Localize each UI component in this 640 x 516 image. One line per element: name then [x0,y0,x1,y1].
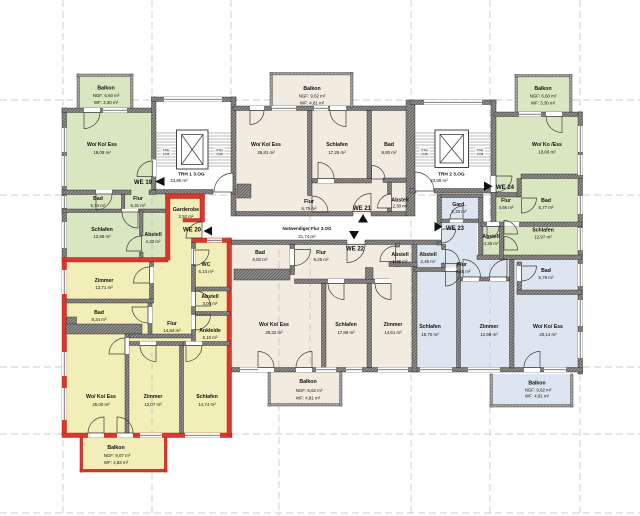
svg-text:14,74 m²: 14,74 m² [198,402,216,407]
svg-text:Bad: Bad [384,142,394,148]
svg-text:Schlafen: Schlafen [326,142,348,148]
svg-text:6,14 m²: 6,14 m² [199,269,214,274]
svg-text:Gard.: Gard. [452,202,466,208]
svg-text:Abstell: Abstell [482,234,500,240]
svg-text:WF: 3,30 m²: WF: 3,30 m² [94,100,119,105]
svg-text:Abstell: Abstell [201,294,219,300]
svg-text:19,05 m²: 19,05 m² [93,150,111,155]
svg-text:19,66 m²: 19,66 m² [538,150,556,155]
svg-text:WE 22: WE 22 [346,247,365,253]
svg-text:4,66 m²: 4,66 m² [499,205,514,210]
svg-text:9,45 m²: 9,45 m² [456,269,471,274]
svg-text:8,34 m²: 8,34 m² [92,317,107,322]
svg-text:17/28: 17/28 [216,152,223,156]
svg-text:Zimmer: Zimmer [384,322,403,328]
svg-text:8 Stg: 8 Stg [477,148,484,152]
svg-text:12,07 m²: 12,07 m² [144,402,162,407]
svg-text:Balkon: Balkon [299,379,316,385]
svg-text:2,52 m²: 2,52 m² [179,214,194,219]
svg-text:Zimmer: Zimmer [480,324,499,330]
svg-text:6,82 m²: 6,82 m² [253,257,268,262]
svg-text:20,14 m²: 20,14 m² [539,332,557,337]
svg-text:Wo/ Ko/ Ess: Wo/ Ko/ Ess [259,322,289,328]
svg-text:3,06 m²: 3,06 m² [203,301,218,306]
svg-text:2,33 m²: 2,33 m² [452,209,467,214]
svg-text:WE 21: WE 21 [353,206,372,212]
svg-text:17/28: 17/28 [163,152,170,156]
svg-text:25,00 m²: 25,00 m² [92,402,110,407]
svg-text:6,10 m²: 6,10 m² [203,335,218,340]
svg-text:WF: 4,81 m²: WF: 4,81 m² [300,101,325,106]
svg-text:8 Stg: 8 Stg [163,148,170,152]
svg-text:NGF: 9,62 m²: NGF: 9,62 m² [296,388,323,393]
svg-text:Zimmer: Zimmer [144,394,163,400]
svg-text:Balkon: Balkon [528,381,545,387]
svg-text:Balkon: Balkon [303,86,320,92]
svg-text:14,61 m²: 14,61 m² [384,330,402,335]
svg-text:Balkon: Balkon [534,86,551,92]
svg-text:Wo/ Ko/ Ess: Wo/ Ko/ Ess [533,324,563,330]
svg-text:29,32 m²: 29,32 m² [265,330,283,335]
svg-text:Wo/ Ko/ Ess: Wo/ Ko/ Ess [251,142,281,148]
svg-text:21,74 m²: 21,74 m² [298,234,316,239]
svg-text:6,75 m²: 6,75 m² [302,206,317,211]
svg-text:5,77 m²: 5,77 m² [539,205,554,210]
svg-text:TRH 1 3.OG: TRH 1 3.OG [178,172,205,178]
svg-text:Schlafen: Schlafen [91,227,113,233]
svg-text:Flur: Flur [133,196,143,202]
svg-text:Bad: Bad [94,310,104,316]
svg-text:Zimmer: Zimmer [95,278,114,284]
svg-text:Wo/ Ko/ Ess: Wo/ Ko/ Ess [87,142,117,148]
svg-text:WF: 4,83 m²: WF: 4,83 m² [104,460,129,465]
svg-text:Bad: Bad [255,250,265,256]
svg-text:Flur: Flur [457,262,467,268]
svg-text:4,33 m²: 4,33 m² [146,239,161,244]
svg-text:12,96 m²: 12,96 m² [93,234,111,239]
svg-text:Wo/ Ko /Ess: Wo/ Ko /Ess [532,142,562,148]
svg-text:NGF: 9,62 m²: NGF: 9,62 m² [299,94,326,99]
svg-text:9,25 m²: 9,25 m² [314,257,329,262]
svg-text:WF: 4,81 m²: WF: 4,81 m² [296,396,321,401]
svg-text:WE 20: WE 20 [183,228,202,234]
svg-text:5,31 m²: 5,31 m² [131,203,146,208]
svg-text:WF: 4,81 m²: WF: 4,81 m² [525,394,550,399]
svg-text:Schlafen: Schlafen [532,228,554,234]
svg-text:23,86 m²: 23,86 m² [170,178,188,183]
svg-text:Flur: Flur [167,321,177,327]
svg-text:4,33 m²: 4,33 m² [484,241,499,246]
svg-text:1,28 m²: 1,28 m² [393,259,408,264]
svg-text:17,26 m²: 17,26 m² [328,150,346,155]
svg-text:Flur: Flur [501,198,511,204]
svg-text:Bad: Bad [541,198,551,204]
svg-text:WC: WC [202,262,211,268]
svg-text:NGF: 6,60 m²: NGF: 6,60 m² [530,94,557,99]
svg-text:5,78 m²: 5,78 m² [539,275,554,280]
svg-text:TRH 2 3.OG: TRH 2 3.OG [438,172,465,178]
svg-text:23,86 m²: 23,86 m² [430,178,448,183]
svg-text:14,84 m²: 14,84 m² [163,328,181,333]
svg-text:Garderobe: Garderobe [173,207,199,213]
svg-text:Balkon: Balkon [107,445,124,451]
svg-text:Schlafen: Schlafen [419,324,441,330]
svg-text:Abstell: Abstell [419,252,437,258]
svg-text:2,30 m²: 2,30 m² [393,204,408,209]
svg-text:15,70 m²: 15,70 m² [421,332,439,337]
svg-text:8,80 m²: 8,80 m² [382,150,397,155]
svg-text:8 Stg: 8 Stg [216,148,223,152]
svg-text:Ankleide: Ankleide [199,328,221,334]
svg-text:WE 19: WE 19 [134,180,153,186]
svg-text:NGF: 6,60 m²: NGF: 6,60 m² [93,93,120,98]
svg-text:12,97 m²: 12,97 m² [534,235,552,240]
svg-text:Notwendiger Flur 3.OG: Notwendiger Flur 3.OG [282,226,332,231]
svg-text:Flur: Flur [316,250,326,256]
svg-text:WE 23: WE 23 [446,226,465,232]
svg-text:WE 24: WE 24 [496,185,515,191]
svg-text:5,74 m²: 5,74 m² [91,203,106,208]
svg-text:Schlafen: Schlafen [196,394,218,400]
svg-text:8 Stg: 8 Stg [421,148,428,152]
svg-text:Wo/ Ko/ Ess: Wo/ Ko/ Ess [86,394,116,400]
svg-text:NGF: 9,67 m²: NGF: 9,67 m² [104,453,131,458]
svg-text:13,71 m²: 13,71 m² [95,285,113,290]
svg-text:Flur: Flur [304,199,314,205]
svg-text:17/28: 17/28 [421,152,428,156]
svg-text:NGF: 9,62 m²: NGF: 9,62 m² [525,388,552,393]
svg-text:17,86 m²: 17,86 m² [337,330,355,335]
svg-text:26,81 m²: 26,81 m² [257,150,275,155]
svg-text:17/28: 17/28 [477,152,484,156]
svg-text:Abstell: Abstell [144,232,162,238]
svg-text:Bad: Bad [93,196,103,202]
svg-text:Balkon: Balkon [97,86,114,92]
svg-text:Schlafen: Schlafen [335,322,357,328]
svg-text:12,98 m²: 12,98 m² [480,332,498,337]
svg-text:Bad: Bad [541,268,551,274]
svg-text:2,45 m²: 2,45 m² [421,259,436,264]
svg-text:Abstell: Abstell [391,252,409,258]
svg-text:WF: 3,30 m²: WF: 3,30 m² [531,101,556,106]
